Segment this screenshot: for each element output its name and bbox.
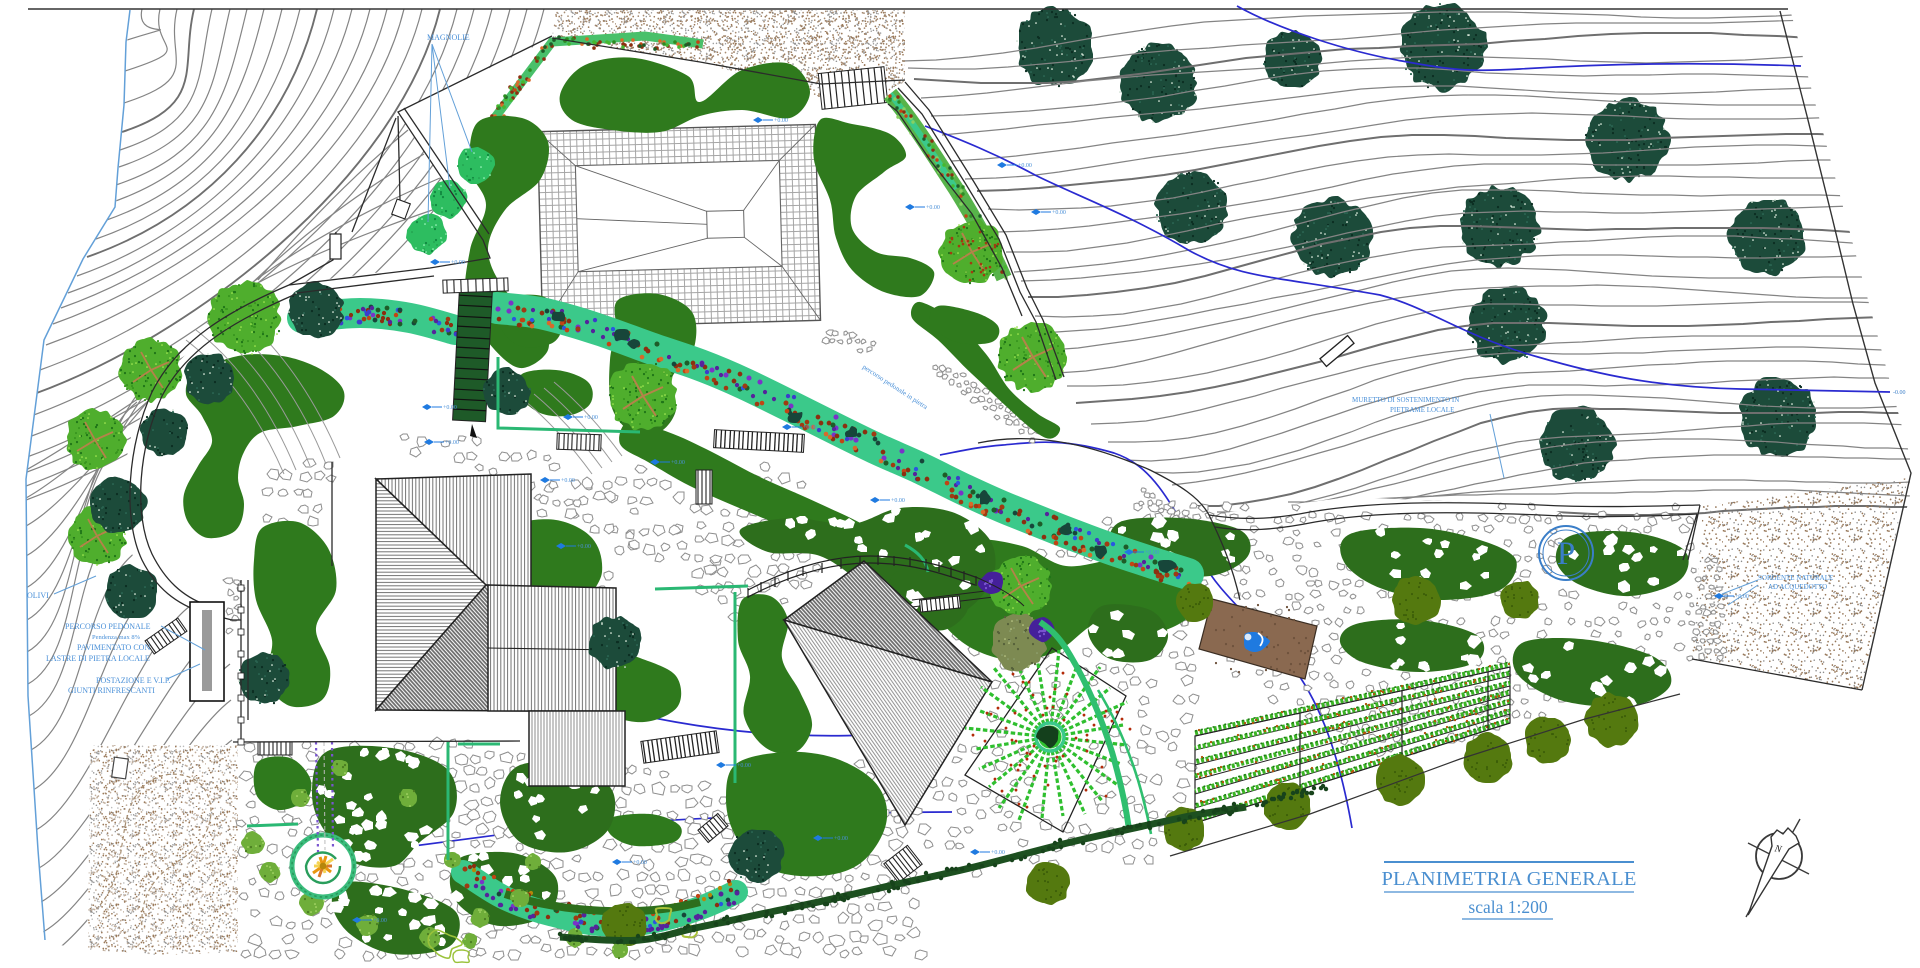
svg-text:+0.00: +0.00 bbox=[577, 544, 591, 550]
svg-text:+0.00: +0.00 bbox=[1018, 163, 1032, 169]
svg-text:+0.00: +0.00 bbox=[774, 118, 788, 124]
svg-text:OLIVI: OLIVI bbox=[27, 591, 49, 600]
svg-text:SORGENTE NATURALE: SORGENTE NATURALE bbox=[1758, 574, 1833, 582]
svg-text:scala 1:200: scala 1:200 bbox=[1468, 897, 1547, 917]
svg-text:+0.00: +0.00 bbox=[1145, 550, 1159, 556]
svg-text:+0.00: +0.00 bbox=[445, 440, 459, 446]
svg-text:+0.00: +0.00 bbox=[443, 405, 457, 411]
svg-text:GIUNTI RINFRESCANTI: GIUNTI RINFRESCANTI bbox=[68, 686, 155, 695]
svg-text:POSTAZIONE E V.I.P.: POSTAZIONE E V.I.P. bbox=[96, 676, 170, 685]
svg-text:+0.00: +0.00 bbox=[926, 205, 940, 211]
svg-text:P: P bbox=[1557, 536, 1575, 572]
svg-text:+0.00: +0.00 bbox=[633, 860, 647, 866]
svg-text:PERCORSO PEDONALE: PERCORSO PEDONALE bbox=[65, 622, 151, 631]
svg-text:+0.00: +0.00 bbox=[803, 425, 817, 431]
svg-text:+0.00: +0.00 bbox=[737, 763, 751, 769]
svg-text:+0.00: +0.00 bbox=[373, 918, 387, 924]
svg-text:PLANIMETRIA GENERALE: PLANIMETRIA GENERALE bbox=[1381, 868, 1636, 890]
svg-text:PAVIMENTATO CON: PAVIMENTATO CON bbox=[77, 643, 150, 652]
svg-text:PIETRAME LOCALE: PIETRAME LOCALE bbox=[1390, 406, 1454, 414]
svg-text:+0.00: +0.00 bbox=[584, 415, 598, 421]
svg-text:+0.00: +0.00 bbox=[991, 850, 1005, 856]
svg-text:Pendenza max 8%: Pendenza max 8% bbox=[92, 634, 141, 641]
svg-text:+0.00: +0.00 bbox=[834, 836, 848, 842]
svg-text:+0.00: +0.00 bbox=[1052, 210, 1066, 216]
svg-text:+0.00: +0.00 bbox=[451, 260, 465, 266]
svg-text:MAGNOLIE: MAGNOLIE bbox=[427, 33, 470, 42]
svg-text:+0.00: +0.00 bbox=[561, 478, 575, 484]
svg-text:MURETTO DI SOSTENIMENTO IN: MURETTO DI SOSTENIMENTO IN bbox=[1352, 396, 1459, 404]
svg-text:+0.00: +0.00 bbox=[891, 498, 905, 504]
svg-text:+0.00: +0.00 bbox=[671, 460, 685, 466]
svg-text:LASTRE DI PIETRA LOCALE: LASTRE DI PIETRA LOCALE bbox=[46, 654, 150, 663]
svg-text:AD ACQUEDOTTO: AD ACQUEDOTTO bbox=[1768, 583, 1827, 591]
svg-text:-0.00: -0.00 bbox=[1893, 390, 1906, 396]
